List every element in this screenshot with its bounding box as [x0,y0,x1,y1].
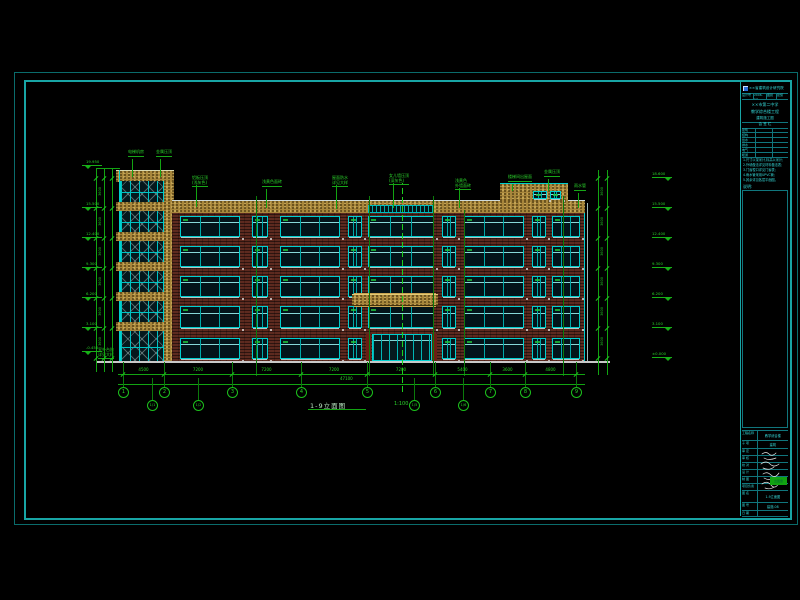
titleblock-label: 审 定 [742,449,758,455]
facade-window [180,338,240,359]
leader-label: 楼梯间出屋面 [508,175,532,182]
facade-window [464,276,524,297]
level-value: 19.950 [86,160,99,164]
dim-segment-text: 7200 [326,368,342,373]
label-line: 金属压顶 [544,170,560,177]
leader-line [548,179,549,191]
facade-window [348,216,362,237]
level-triangle-icon [665,298,671,301]
titleblock-value: 建施-08 [758,504,788,509]
ground-line [96,361,610,363]
sign-row-label: 暖通 [742,153,756,157]
level-marker: 15.500 [652,202,674,211]
dim-text-vertical: 3600 [99,187,103,196]
sign-row-cell [756,153,772,157]
dim-segment-text: 7200 [259,368,275,373]
titleblock-label: 设 计 [742,470,758,476]
dim-text-vertical: 3600 [601,307,605,316]
level-triangle-icon [85,166,91,169]
axis-line [464,210,465,376]
titleblock-row: 子 项建筑 [742,441,788,449]
level-value: 6.200 [86,292,97,296]
facade-window [552,216,580,237]
titleblock-label: 日 期 [742,511,758,516]
titleblock-row: 图 名1-9立面图 [742,491,788,503]
leader-line [160,159,161,177]
axis-line [433,196,434,376]
sign-table: 建筑结构给水排水电气暖通 [742,128,788,158]
facade-window [252,216,268,237]
leader-line [196,185,197,207]
facade-window [368,246,434,267]
facade-window [442,338,456,359]
grid-bubble: 6 [430,387,441,398]
leader-line [132,159,133,177]
facade-window [532,306,546,328]
dim-text-vertical: 3600 [601,277,605,286]
level-marker: 6.200 [652,292,674,301]
signature-scrawl [758,450,788,492]
leader-label: 浅黄色面砖 [262,180,282,187]
facade-window [252,338,268,359]
label-line: 详见大样 [332,181,348,188]
grid-bubble-offset: 1/5 [409,400,420,411]
sign-row-label: 建筑 [742,128,756,132]
facade-window [280,338,340,359]
tower-glazing [120,211,164,232]
leader-label: 铝板压顶(浅灰色) [192,176,208,187]
level-marker: 3.100 [652,322,674,331]
grid-bubble: 8 [520,387,531,398]
titleblock-label: 子 项 [742,441,758,448]
field-cell: 2006-12 [754,93,767,99]
level-marker: 12.400 [652,232,674,241]
tower-spandrel [116,232,164,241]
level-marker: 9.300 [652,262,674,271]
project-line: ××市第二中学 [742,102,788,108]
level-triangle-icon [665,358,671,361]
facade-window [552,246,580,267]
label-line: 外墙面砖 [455,184,471,191]
blank-box [742,190,788,428]
leader-label: 女儿墙压顶(深灰色) [389,174,409,185]
leader-line [512,184,513,191]
level-marker: -0.450 [82,346,104,355]
axis-line [256,196,257,376]
grid-bubble: 1 [118,387,129,398]
project-line: 教学综合楼工程 [742,109,788,115]
level-marker: 9.300 [82,262,104,271]
dim-segment-text: 3600 [500,368,516,373]
titleblock-row: 日 期 [742,511,788,517]
sign-row-label: 结构 [742,133,756,137]
sign-row-label: 给水 [742,138,756,142]
facade-window [280,216,340,237]
notes-block: 1.尺寸以毫米计,标高以米计;2.外墙做法详见材料做法表;3.门窗樘口详见门窗表… [743,158,788,183]
dim-segment-text: 4800 [543,368,559,373]
dim-text-vertical: 3600 [99,247,103,256]
sign-row-cell [756,128,772,132]
grid-bubble: 3 [227,387,238,398]
dim-segment-text: 5400 [455,368,471,373]
level-value: 12.400 [652,232,665,236]
facade-window [464,246,524,267]
facade-window [348,306,362,328]
sign-row-cell [756,148,772,152]
grid-bubble-offset: 1/1 [147,400,158,411]
dim-total-text: 47100 [340,377,353,382]
center-axis-line [402,183,403,392]
leader-label: 电梯机房 [128,150,144,157]
level-value: 6.200 [652,292,663,296]
facade-window [368,216,434,237]
titleblock-label: 工程名称 [742,431,758,440]
leader-label: 雨水管 [574,184,586,191]
level-value: 9.300 [86,262,97,266]
facade-window [532,216,546,237]
titleblock-value: 教学综合楼 [758,433,788,438]
dim-text-vertical: 3600 [99,277,103,286]
dim-chain-left [104,168,105,372]
tower-glazing-ground [120,331,164,361]
label-line: (浅灰色) [192,181,208,188]
grid-bubble: 2 [159,387,170,398]
titleblock-row: 图 号建施-08 [742,503,788,511]
company-logo-icon [743,86,748,91]
level-value: 9.300 [652,262,663,266]
company-name: ××省建筑设计研究院 [749,86,784,91]
level-value: 3.100 [86,322,97,326]
titleblock-value: 建筑 [758,442,788,447]
drawing-title-underline [308,409,366,410]
level-value: 15.500 [652,202,665,206]
dim-text-vertical: 3600 [99,217,103,226]
level-marker: 3.100 [82,322,104,331]
grid-bubble: 4 [296,387,307,398]
facade-window [442,246,456,267]
titleblock-row: 工程名称教学综合楼 [742,431,788,441]
sign-row-cell [773,128,788,132]
note-line: 5.其余详见各层平面图。 [743,178,788,183]
tower-spandrel [116,262,164,271]
facade-window [180,306,240,328]
dim-chain-right [598,170,599,375]
titleblock-label: 图 名 [742,491,758,502]
dim-text-vertical: 3600 [601,247,605,256]
facade-window [464,338,524,359]
titleblock-label: 审 核 [742,456,758,462]
green-stamp: 出图章 [770,477,787,485]
sign-row-cell [756,143,772,147]
level-triangle-icon [665,328,671,331]
facade-window [180,276,240,297]
facade-window [348,246,362,267]
level-value: -0.450 [86,346,98,350]
sign-row-cell [756,133,772,137]
offset-leader [198,378,199,400]
cad-sheet: 47100 1-9立面图 1:100 室外台阶 详见大样 36003600360… [0,0,800,600]
facade-window [348,338,362,359]
level-marker: 18.600 [652,172,674,181]
dim-segment-text: 4500 [136,368,152,373]
tower-glazing [120,271,164,292]
facade-window [532,246,546,267]
level-marker: 12.400 [82,232,104,241]
titleblock-label: 制 图 [742,477,758,483]
sign-row-cell [773,143,788,147]
leader-line [459,188,460,208]
dim-chain-left [112,168,113,372]
level-triangle-icon [665,238,671,241]
titleblock-label: 校 对 [742,463,758,469]
tower-spandrel [116,292,164,301]
grid-bubble: 5 [362,387,373,398]
level-triangle-icon [665,178,671,181]
facade-window [252,306,268,328]
leader-line [578,193,579,208]
sign-row-cell [756,138,772,142]
label-line: 金属压顶 [156,150,172,157]
level-triangle-icon [85,208,91,211]
dim-segment-text: 7200 [190,368,206,373]
level-marker: 15.500 [82,202,104,211]
facade-window [532,276,546,297]
sign-strip [368,205,434,213]
field-cell: 设计号 [742,93,754,99]
field-cell: 图别 [767,93,777,99]
facade-window [280,306,340,328]
sign-row-cell [773,138,788,142]
leader-line [336,185,337,209]
level-value: 3.100 [652,322,663,326]
level-triangle-icon [665,208,671,211]
level-triangle-icon [85,268,91,271]
grid-bubble-offset: 1/2 [193,400,204,411]
facade-window [280,246,340,267]
tower-spandrel [116,202,164,211]
facade-window [464,306,524,328]
tower-spandrel [116,322,164,331]
titleblock-label: 图 号 [742,503,758,510]
sign-row-label: 电气 [742,148,756,152]
grid-bubble: 9 [571,387,582,398]
bulkhead-window [533,191,547,199]
level-triangle-icon [85,352,91,355]
title-panel: ××省建筑设计研究院 设计号 2006-12 图别 建施 ××市第二中学 教学综… [740,82,788,516]
facade-window [180,246,240,267]
level-marker: 6.200 [82,292,104,301]
level-triangle-icon [85,238,91,241]
panel-fields: 设计号 2006-12 图别 建施 [742,93,788,100]
leader-line [266,189,267,208]
axis-line [563,196,564,376]
project-line: 建筑施工图 [742,116,788,121]
offset-leader [463,378,464,400]
drawing-area[interactable]: 47100 1-9立面图 1:100 室外台阶 详见大样 36003600360… [0,0,800,600]
label-line: (深灰色) [389,179,409,186]
dim-line-row1 [118,374,585,375]
level-marker: 19.950 [82,160,104,169]
facade-window [442,276,456,297]
facade-window [442,216,456,237]
dim-text-vertical: 3600 [601,217,605,226]
facade-window [252,246,268,267]
rain-pipe [587,203,588,361]
project-block: ××市第二中学 教学综合楼工程 建筑施工图 [742,100,788,123]
facade-window [442,306,456,328]
label-line: 雨水管 [574,184,586,191]
level-marker: ±0.000 [652,352,674,361]
dim-text-vertical: 3600 [601,337,605,346]
leader-label: 浅黄色外墙面砖 [455,179,471,190]
titleblock-value: 1-9立面图 [758,494,788,499]
facade-window [180,216,240,237]
tower-glazing [120,301,164,322]
facade-window [532,338,546,359]
grid-bubble: 7 [485,387,496,398]
level-value: 12.400 [86,232,99,236]
sign-row-cell [773,153,788,157]
level-triangle-icon [85,298,91,301]
offset-leader [152,378,153,400]
dim-text-vertical: 3600 [99,307,103,316]
facade-window [252,276,268,297]
sign-row-label: 排水 [742,143,756,147]
leader-label: 屋面防水详见大样 [332,176,348,187]
tower-glazing [120,181,164,202]
label-line: 楼梯间出屋面 [508,175,532,182]
level-value: 15.500 [86,202,99,206]
dim-text-vertical: 3600 [601,187,605,196]
axis-line [369,196,370,376]
facade-window [464,216,524,237]
leader-line [393,183,394,208]
titleblock-label: 项目负责 [742,484,758,490]
dim-chain-right [607,170,608,375]
facade-window [552,338,580,359]
level-value: ±0.000 [652,352,666,356]
sign-row-cell [773,133,788,137]
leader-label: 金属压顶 [156,150,172,157]
facade-window [552,306,580,328]
dim-segment-text: 7200 [393,368,409,373]
sign-row-cell [773,148,788,152]
facade-window [280,276,340,297]
field-cell: 建施 [777,93,788,99]
bulkhead-window [550,191,561,199]
grid-bubble-offset: 1/6 [458,400,469,411]
offset-leader [414,378,415,400]
drawing-scale: 1:100 [394,402,408,408]
tower-glazing [120,241,164,262]
facade-window [552,276,580,297]
facade-window [368,306,434,328]
label-line: 浅黄色面砖 [262,180,282,187]
entrance-canopy-band [352,294,438,306]
dim-text-vertical: 3600 [99,337,103,346]
dim-line-total [118,384,585,385]
level-triangle-icon [665,268,671,271]
label-line: 电梯机房 [128,150,144,157]
level-triangle-icon [85,328,91,331]
leader-label: 金属压顶 [544,170,560,177]
level-value: 18.600 [652,172,665,176]
